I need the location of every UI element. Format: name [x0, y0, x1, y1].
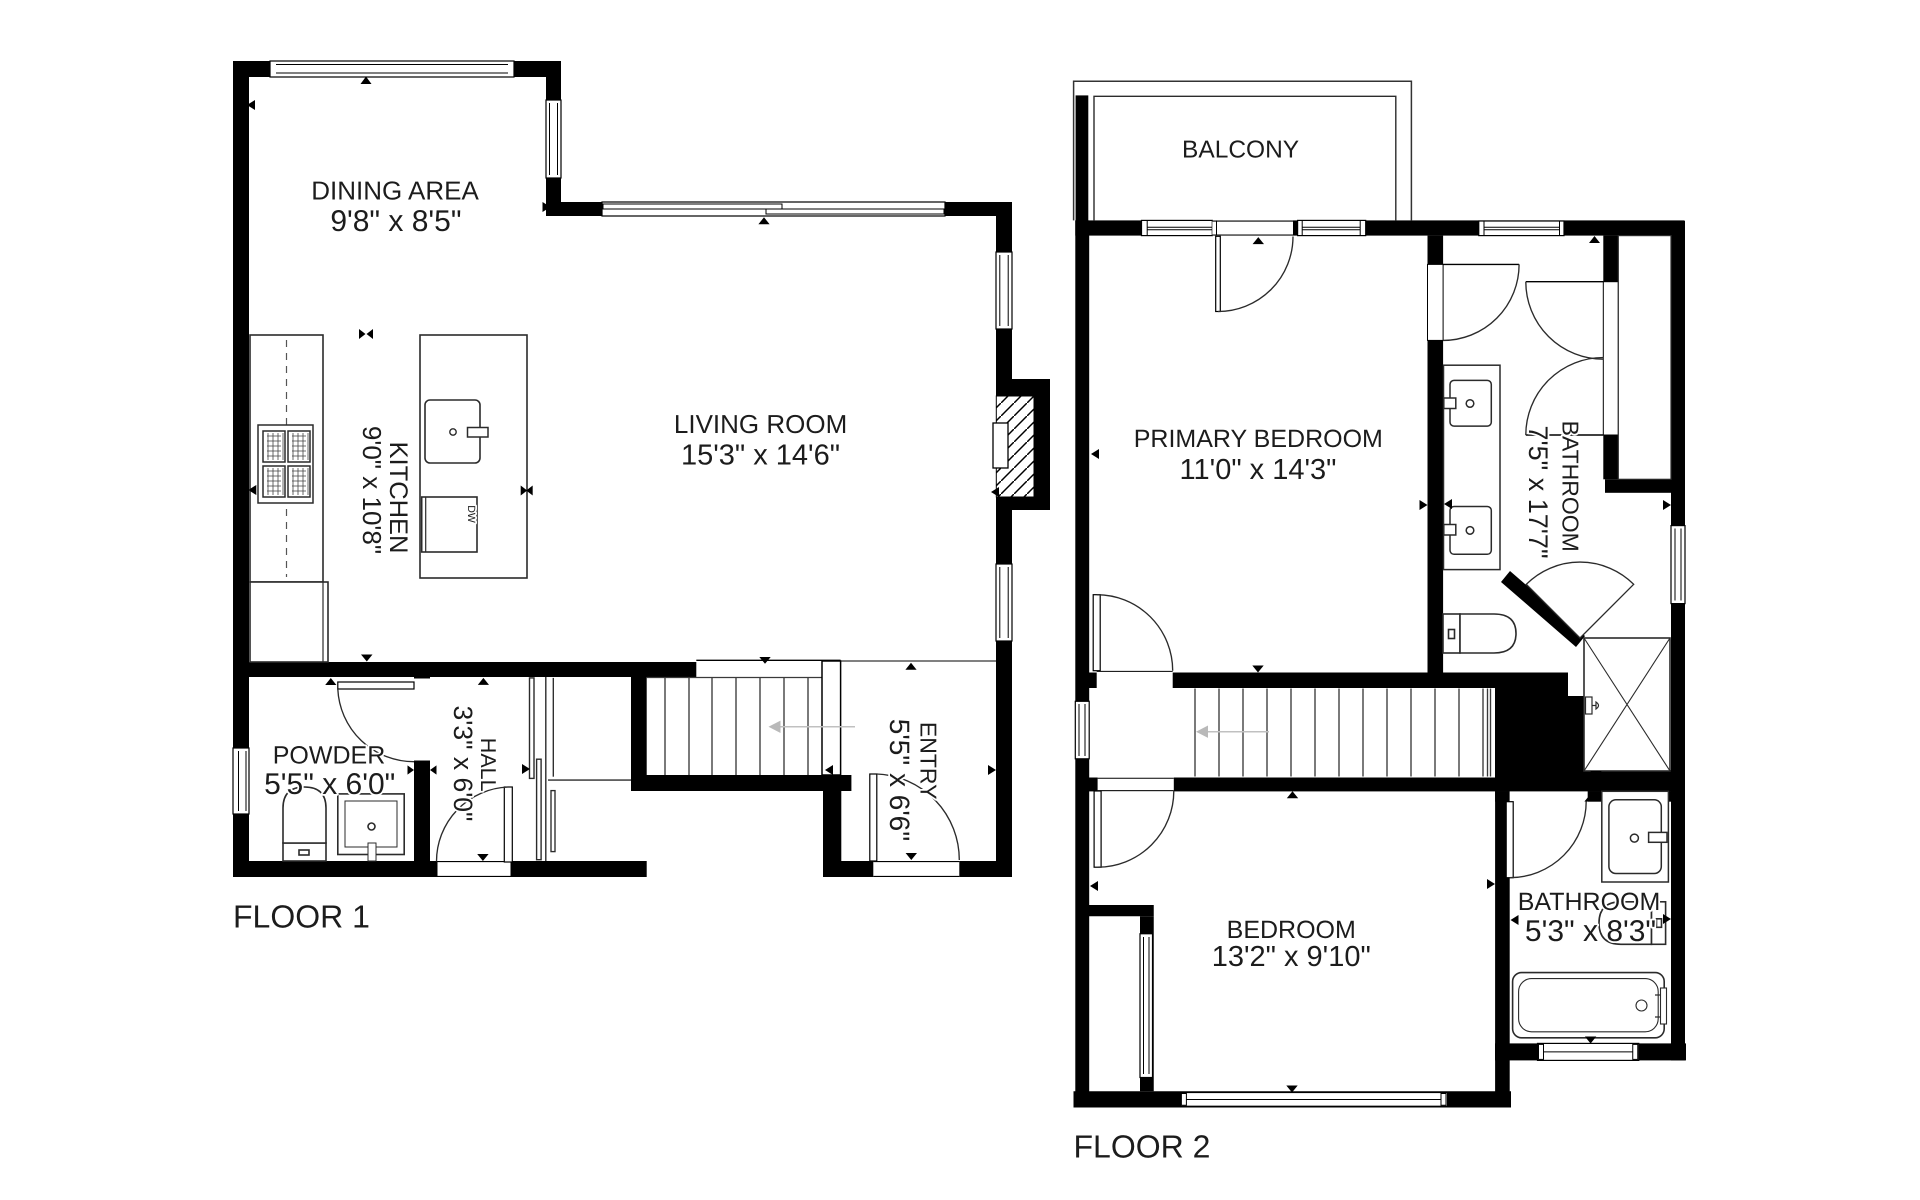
svg-text:DINING AREA: DINING AREA [311, 176, 479, 206]
svg-text:ENTRY: ENTRY [916, 722, 942, 800]
svg-text:BEDROOM: BEDROOM [1227, 916, 1356, 944]
svg-text:FLOOR 1: FLOOR 1 [233, 899, 370, 935]
svg-text:5'5" x 6'0": 5'5" x 6'0" [264, 768, 395, 801]
svg-text:5'3" x 8'3": 5'3" x 8'3" [1525, 915, 1656, 948]
svg-text:HALL: HALL [476, 738, 500, 792]
svg-text:BATHROOM: BATHROOM [1558, 421, 1584, 552]
svg-text:15'3" x 14'6": 15'3" x 14'6" [681, 440, 840, 472]
svg-text:PRIMARY BEDROOM: PRIMARY BEDROOM [1134, 425, 1383, 453]
svg-text:FLOOR 2: FLOOR 2 [1074, 1128, 1211, 1164]
svg-text:DW: DW [465, 505, 477, 523]
svg-text:BALCONY: BALCONY [1182, 137, 1299, 164]
svg-text:3'3" x 6'0": 3'3" x 6'0" [448, 706, 478, 822]
svg-text:BATHROOM: BATHROOM [1518, 888, 1661, 916]
svg-text:9'0" x 10'8": 9'0" x 10'8" [357, 426, 387, 554]
svg-text:5'5" x 6'6": 5'5" x 6'6" [884, 719, 915, 841]
svg-text:POWDER: POWDER [273, 742, 386, 770]
svg-text:KITCHEN: KITCHEN [384, 442, 412, 554]
svg-text:9'8" x 8'5": 9'8" x 8'5" [330, 205, 461, 238]
svg-text:LIVING ROOM: LIVING ROOM [674, 409, 847, 439]
svg-text:11'0" x 14'3": 11'0" x 14'3" [1180, 454, 1337, 486]
svg-text:13'2" x 9'10": 13'2" x 9'10" [1212, 941, 1371, 973]
svg-text:7'5" x 17'7": 7'5" x 17'7" [1523, 425, 1553, 558]
